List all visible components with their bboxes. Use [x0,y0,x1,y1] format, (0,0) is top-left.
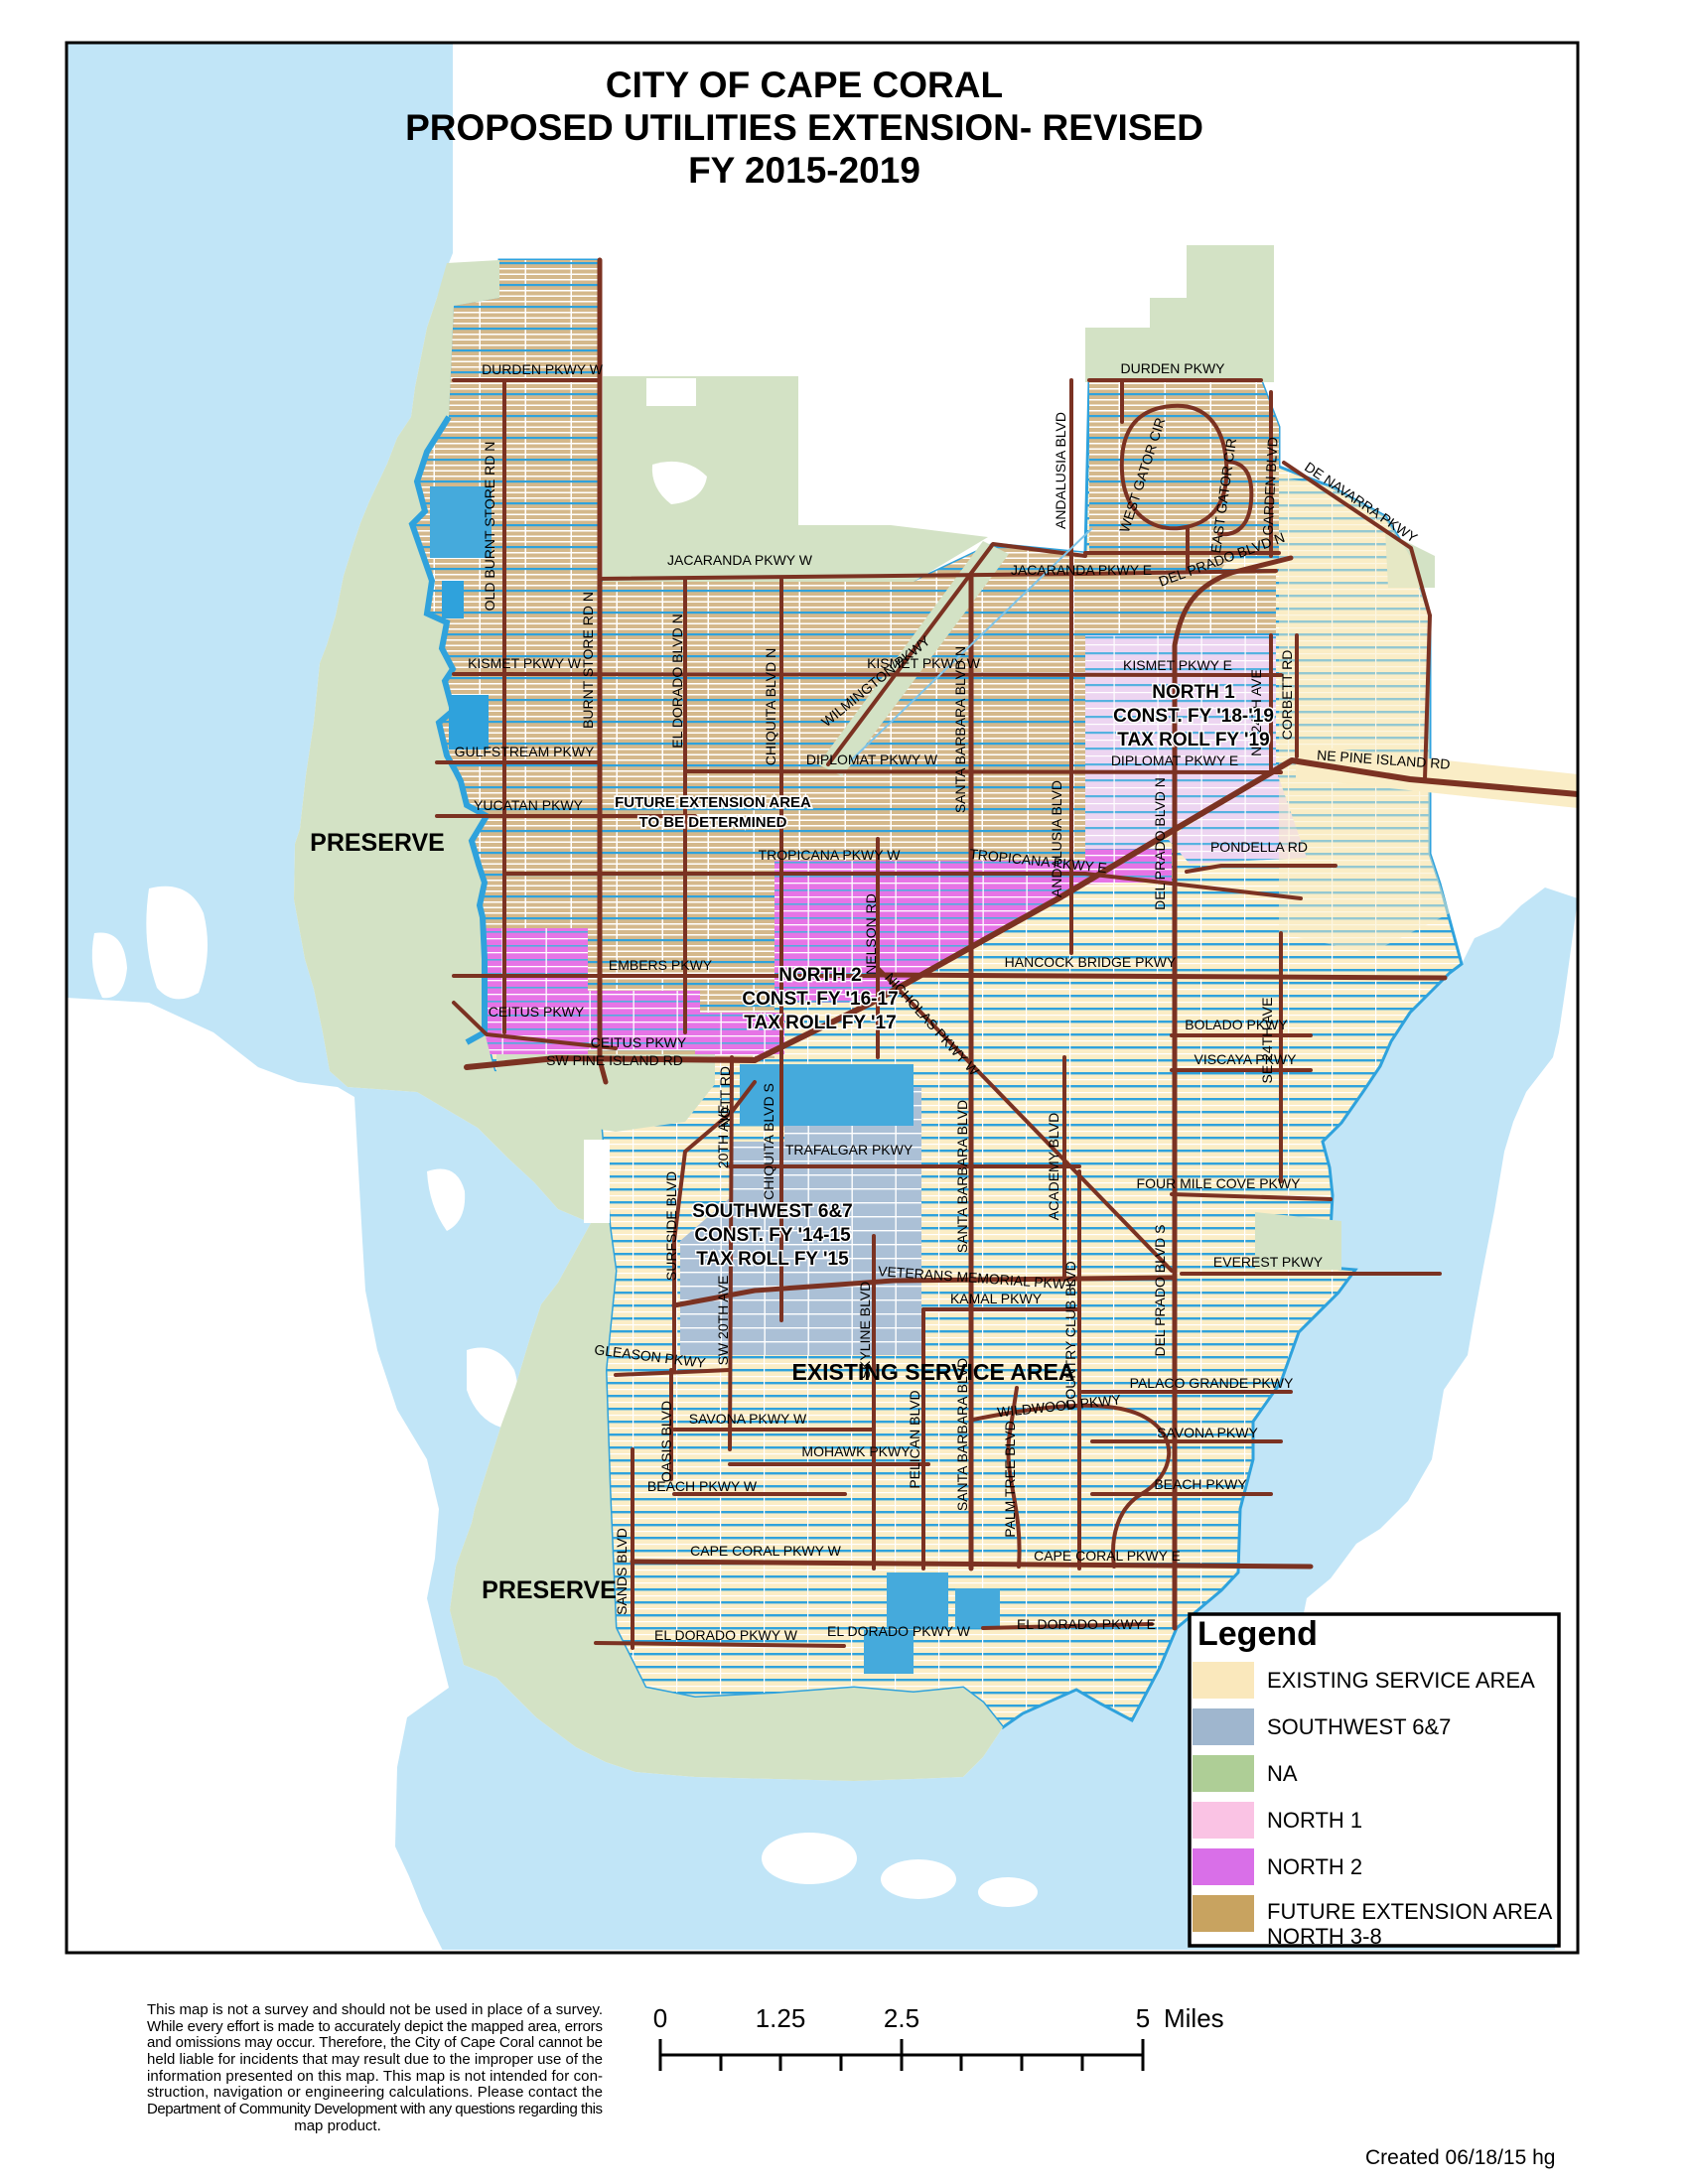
svg-text:held liable for incidents that: held liable for incidents that may resul… [147,2051,603,2068]
svg-text:FUTURE EXTENSION AREA: FUTURE EXTENSION AREA [615,794,811,811]
svg-text:0: 0 [653,2003,667,2033]
svg-text:This map is not a survey and s: This map is not a survey and should not … [147,2001,603,2018]
svg-text:Legend: Legend [1197,1615,1318,1653]
svg-text:CHIQUITA BLVD N: CHIQUITA BLVD N [763,648,778,766]
svg-text:struction, navigation or engin: struction, navigation or engineering cal… [147,2084,603,2101]
svg-text:VISCAYA PKWY: VISCAYA PKWY [1195,1051,1298,1067]
svg-text:EXISTING SERVICE AREA: EXISTING SERVICE AREA [791,1359,1074,1385]
svg-text:NORTH 2: NORTH 2 [1267,1854,1362,1879]
svg-text:CONST. FY '14-15: CONST. FY '14-15 [694,1225,851,1246]
svg-text:TAX ROLL FY '15: TAX ROLL FY '15 [696,1249,849,1270]
svg-text:EVEREST PKWY: EVEREST PKWY [1213,1254,1324,1270]
svg-text:CEITUS PKWY: CEITUS PKWY [489,1004,585,1020]
svg-text:DURDEN PKWY: DURDEN PKWY [1120,360,1225,376]
svg-text:JACARANDA PKWY E: JACARANDA PKWY E [1011,562,1152,578]
svg-text:EL DORADO BLVD N: EL DORADO BLVD N [669,614,685,748]
svg-text:HANCOCK BRIDGE PKWY: HANCOCK BRIDGE PKWY [1005,954,1177,970]
svg-text:PONDELLA RD: PONDELLA RD [1210,839,1308,855]
svg-text:CAPE CORAL PKWY E: CAPE CORAL PKWY E [1034,1548,1181,1564]
svg-text:NORTH 2: NORTH 2 [778,965,861,986]
svg-text:DIPLOMAT PKWY E: DIPLOMAT PKWY E [1111,752,1238,768]
svg-text:CITY OF CAPE CORAL: CITY OF CAPE CORAL [606,65,1003,105]
svg-text:DIPLOMAT PKWY W: DIPLOMAT PKWY W [806,751,938,767]
svg-text:OASIS BLVD: OASIS BLVD [658,1401,674,1482]
svg-text:ACADEMY BLVD: ACADEMY BLVD [1046,1113,1061,1220]
svg-text:NELSON RD: NELSON RD [863,893,879,975]
svg-text:PROPOSED UTILITIES EXTENSION-: PROPOSED UTILITIES EXTENSION- REVISED [405,107,1203,148]
svg-text:Created 06/18/15 hg: Created 06/18/15 hg [1365,2146,1555,2169]
svg-text:20TH AVE: 20TH AVE [715,1105,731,1168]
svg-text:TROPICANA PKWY W: TROPICANA PKWY W [759,847,902,863]
svg-text:MOHAWK PKWY: MOHAWK PKWY [801,1443,911,1459]
svg-text:SW PINE ISLAND RD: SW PINE ISLAND RD [546,1052,683,1068]
svg-text:TO BE DETERMINED: TO BE DETERMINED [639,814,787,831]
svg-text:1.25: 1.25 [756,2003,806,2033]
svg-text:SURFSIDE BLVD: SURFSIDE BLVD [663,1171,679,1281]
svg-text:Miles: Miles [1164,2003,1224,2033]
svg-text:COUNTRY CLUB BLVD: COUNTRY CLUB BLVD [1062,1261,1078,1409]
svg-text:2.5: 2.5 [884,2003,919,2033]
svg-text:EL DORADO PKWY W: EL DORADO PKWY W [827,1623,971,1639]
svg-text:SW 20TH AVE: SW 20TH AVE [715,1276,731,1366]
svg-text:CAPE CORAL PKWY W: CAPE CORAL PKWY W [690,1543,841,1559]
svg-text:SAVONA PKWY: SAVONA PKWY [1157,1425,1258,1440]
svg-text:JACARANDA PKWY W: JACARANDA PKWY W [667,552,813,568]
svg-text:GULFSTREAM PKWY: GULFSTREAM PKWY [455,744,595,759]
svg-text:CONST. FY '18-'19: CONST. FY '18-'19 [1113,706,1274,727]
svg-text:NORTH 3-8: NORTH 3-8 [1267,1924,1382,1949]
svg-text:PALM TREE BLVD: PALM TREE BLVD [1002,1421,1018,1537]
svg-text:EXISTING SERVICE AREA: EXISTING SERVICE AREA [1267,1668,1535,1693]
svg-text:map product.: map product. [294,2117,381,2134]
svg-text:CORBETT RD: CORBETT RD [1279,650,1295,741]
svg-text:SOUTHWEST 6&7: SOUTHWEST 6&7 [1267,1714,1451,1739]
svg-text:While every effort is made to: While every effort is made to accurately… [147,2018,603,2035]
svg-text:FY 2015-2019: FY 2015-2019 [688,150,920,191]
svg-text:EL DORADO PKWY W: EL DORADO PKWY W [654,1627,798,1643]
svg-text:NA: NA [1267,1761,1298,1786]
svg-text:PALACO GRANDE PKWY: PALACO GRANDE PKWY [1130,1375,1294,1391]
svg-text:SAVONA PKWY W: SAVONA PKWY W [689,1411,807,1427]
svg-text:KISMET PKWY E: KISMET PKWY E [1123,657,1232,673]
svg-text:DURDEN PKWY W: DURDEN PKWY W [482,361,604,377]
svg-text:NORTH 1: NORTH 1 [1267,1808,1362,1833]
svg-text:SOUTHWEST 6&7: SOUTHWEST 6&7 [692,1201,853,1222]
svg-text:PELICAN BLVD: PELICAN BLVD [907,1390,922,1488]
svg-text:SANTA BARBARA BLVD: SANTA BARBARA BLVD [954,1100,970,1253]
svg-text:FOUR MILE COVE PKWY: FOUR MILE COVE PKWY [1137,1175,1302,1191]
svg-text:PRESERVE: PRESERVE [482,1576,617,1604]
svg-text:and omissions may occur. There: and omissions may occur. Therefore, the … [147,2034,603,2051]
svg-text:NORTH 1: NORTH 1 [1152,682,1235,703]
svg-text:EL DORADO PKWY E: EL DORADO PKWY E [1017,1616,1156,1632]
svg-text:TAX ROLL FY '17: TAX ROLL FY '17 [744,1013,896,1033]
svg-text:KISMET PKWY W: KISMET PKWY W [468,655,582,671]
svg-text:CHIQUITA BLVD S: CHIQUITA BLVD S [761,1083,776,1200]
svg-text:information presented on this: information presented on this map. This … [147,2068,603,2085]
svg-text:ANDALUSIA BLVD: ANDALUSIA BLVD [1049,780,1064,897]
svg-text:DEL PRADO BLVD N: DEL PRADO BLVD N [1152,777,1168,910]
svg-text:ANDALUSIA BLVD: ANDALUSIA BLVD [1053,412,1068,529]
svg-text:5: 5 [1136,2003,1150,2033]
svg-text:DEL PRADO BLVD S: DEL PRADO BLVD S [1152,1224,1168,1356]
svg-text:SANTA BARBARA BLVD N: SANTA BARBARA BLVD N [952,646,968,813]
svg-text:Department of Community Develo: Department of Community Development with… [147,2101,603,2117]
svg-text:CONST. FY '16-17: CONST. FY '16-17 [742,989,898,1010]
svg-text:TRAFALGAR PKWY: TRAFALGAR PKWY [785,1142,914,1158]
svg-text:PRESERVE: PRESERVE [310,829,445,857]
svg-text:YUCATAN PKWY: YUCATAN PKWY [474,797,584,813]
svg-text:EMBERS PKWY: EMBERS PKWY [609,957,713,973]
svg-text:KAMAL PKWY: KAMAL PKWY [950,1291,1043,1306]
svg-text:TAX ROLL FY '19: TAX ROLL FY '19 [1117,730,1269,751]
svg-text:BEACH PKWY: BEACH PKWY [1154,1476,1247,1492]
svg-text:FUTURE EXTENSION AREA: FUTURE EXTENSION AREA [1267,1899,1553,1924]
svg-text:BURNT STORE RD N: BURNT STORE RD N [580,592,596,729]
svg-text:SE 24TH AVE: SE 24TH AVE [1259,998,1275,1084]
svg-text:OLD BURNT STORE RD N: OLD BURNT STORE RD N [482,442,497,612]
svg-text:CEITUS PKWY: CEITUS PKWY [591,1034,687,1050]
